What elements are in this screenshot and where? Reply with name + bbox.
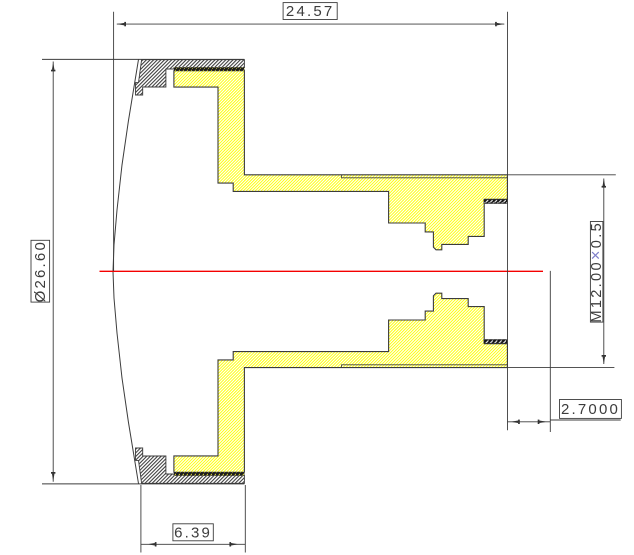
svg-text:M12.00×0.5: M12.00×0.5: [587, 221, 605, 323]
svg-text:24.57: 24.57: [286, 3, 335, 20]
svg-text:Ø26.60: Ø26.60: [32, 240, 49, 302]
svg-text:6.39: 6.39: [174, 524, 212, 541]
svg-text:2.7000: 2.7000: [561, 401, 620, 418]
